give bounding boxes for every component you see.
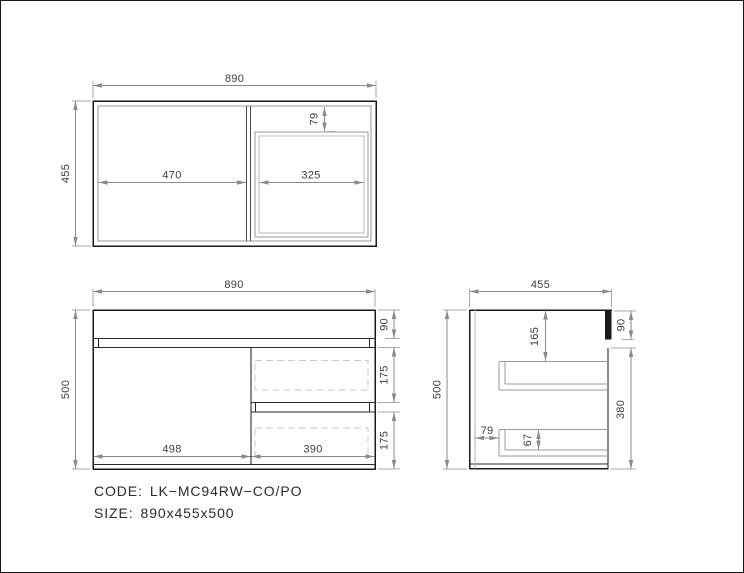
dim-front-overall-height: 500: [60, 310, 90, 469]
dim-text-325: 325: [301, 170, 320, 182]
dim-top-overall-width: 890: [93, 73, 376, 98]
dim-text-front-890: 890: [224, 279, 243, 291]
code-label: CODE:: [94, 483, 143, 499]
dim-text-498: 498: [162, 444, 181, 456]
dim-drawer-side-height: 67: [522, 430, 539, 450]
code-value: LK−MC94RW−CO/PO: [150, 483, 303, 499]
specification-sheet: 890 455 470 325 79: [0, 0, 744, 573]
counter-front-edge-bar: [605, 311, 612, 340]
dim-text-380: 380: [615, 400, 627, 419]
dim-text-side-500: 500: [432, 380, 444, 399]
lower-drawer-profile: [499, 430, 608, 457]
dim-side-cabinet-body: 380: [611, 348, 637, 469]
dim-top-overall-depth: 455: [60, 101, 91, 246]
dim-front-upper-drawer: 175: [378, 348, 401, 403]
dim-text-front-500: 500: [60, 380, 72, 399]
size-label: SIZE:: [94, 505, 134, 521]
dim-text-front-175-upper: 175: [379, 365, 391, 384]
dim-text-top-455: 455: [60, 164, 72, 183]
dim-text-side-90: 90: [616, 319, 628, 332]
dim-front-top-panel: 90: [378, 310, 401, 339]
dim-text-front-90: 90: [379, 318, 391, 331]
dim-text-top-890: 890: [225, 73, 244, 85]
upper-drawer-profile: [499, 362, 608, 391]
dim-back-offset: 79: [475, 425, 499, 445]
product-code-line: CODE:LK−MC94RW−CO/PO: [94, 483, 302, 499]
dim-text-side-79: 79: [481, 425, 494, 437]
dim-text-67: 67: [522, 434, 534, 447]
dim-front-lower-drawer: 175: [378, 412, 401, 469]
dim-drawer-top-inset: 165: [529, 311, 546, 362]
technical-drawing-canvas: 890 455 470 325 79: [1, 1, 743, 572]
dim-text-390: 390: [303, 444, 322, 456]
size-value: 890x455x500: [141, 505, 235, 521]
dim-text-top-79: 79: [309, 113, 321, 126]
front-view-structure: [93, 310, 375, 469]
dim-side-top-panel: 90: [614, 311, 636, 340]
footer: CODE:LK−MC94RW−CO/PO SIZE:890x455x500: [94, 483, 302, 521]
dim-side-overall-height: 500: [432, 310, 468, 469]
dim-side-overall-depth: 455: [470, 279, 612, 307]
top-view-structure: [93, 101, 376, 246]
front-view: 890 500 90 175 175 498: [60, 279, 400, 469]
top-view: 890 455 470 325 79: [60, 73, 376, 246]
product-size-line: SIZE:890x455x500: [94, 505, 235, 521]
side-view: 455 500 90 380 165 67: [432, 279, 637, 469]
dim-text-front-175-lower: 175: [379, 431, 391, 450]
dim-text-165: 165: [529, 327, 541, 346]
dim-text-470: 470: [162, 170, 181, 182]
dim-text-side-455: 455: [531, 279, 550, 291]
top-view-cabinet-outline: [93, 101, 376, 246]
dim-front-overall-width: 890: [93, 279, 375, 307]
